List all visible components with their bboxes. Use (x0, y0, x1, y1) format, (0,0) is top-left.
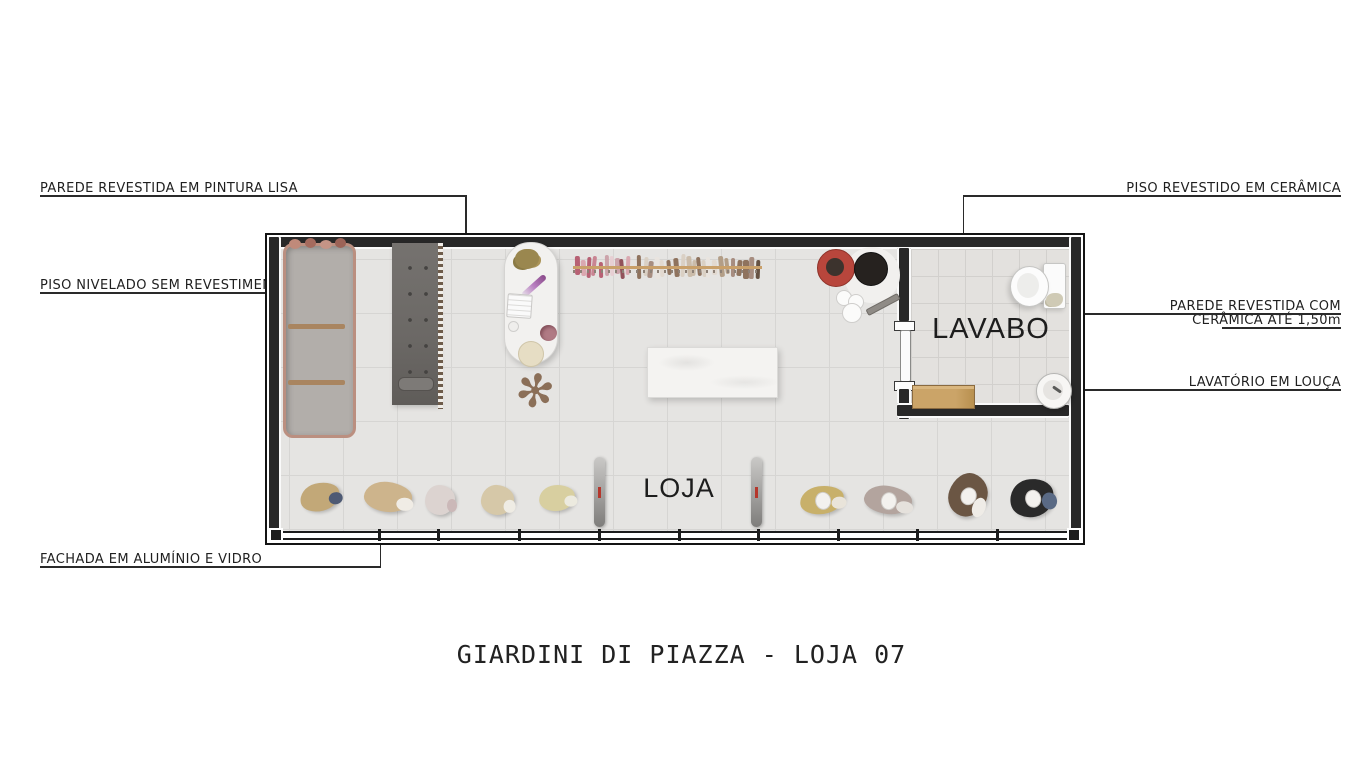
mannequin-icon (479, 484, 514, 516)
leader-line-fachada-rise (380, 543, 382, 567)
shopper-figure-icon (798, 483, 845, 517)
mannequin-icon (297, 479, 343, 516)
floor-plan: ✻ LAVABO LOJA (265, 233, 1085, 545)
mannequin-icon (425, 485, 455, 515)
leader-line-parede-ceramica (1071, 313, 1341, 315)
room-label-loja: LOJA (619, 473, 739, 504)
label-parede-ceramica-line2: CERÂMICA ATÉ 1,50m (1192, 313, 1341, 328)
label-piso-nivelado: PISO NIVELADO SEM REVESTIMENTO (40, 279, 291, 293)
label-fachada: FACHADA EM ALUMÍNIO E VIDRO (40, 553, 262, 567)
wood-counter-icon (912, 385, 975, 409)
hanger-hooks (573, 270, 762, 273)
leader-line-parede-pintura (40, 195, 467, 197)
page-title: GIARDINI DI PIAZZA - LOJA 07 (0, 640, 1363, 669)
shopper-figure-icon (862, 483, 913, 517)
room-label-lavabo: LAVABO (911, 313, 1071, 346)
label-parede-pintura: PAREDE REVESTIDA EM PINTURA LISA (40, 182, 298, 196)
label-parede-ceramica-line1: PAREDE REVESTIDA COM (1170, 299, 1341, 314)
label-piso-ceramica: PISO REVESTIDO EM CERÂMICA (1126, 182, 1341, 196)
leader-line-piso-ceramica (963, 195, 1341, 197)
sink-icon (1036, 373, 1072, 409)
shopper-figure-icon (1007, 475, 1058, 521)
mannequin-icon (363, 480, 414, 515)
toilet-bowl (1010, 266, 1049, 307)
mannequin-icon (538, 483, 577, 513)
shopper-figure-icon (943, 468, 994, 522)
figure-accent (503, 499, 515, 513)
toilet-seat (1017, 273, 1039, 298)
leader-line-fachada (40, 566, 381, 568)
underline-parede-ceramica-line2 (1222, 327, 1341, 329)
leader-line-lavatorio (1065, 389, 1341, 391)
label-lavatorio: LAVATÓRIO EM LOUÇA (1189, 376, 1341, 390)
figure-accent (447, 499, 458, 513)
figure-accent (564, 495, 578, 508)
clothes-rail (573, 266, 762, 269)
